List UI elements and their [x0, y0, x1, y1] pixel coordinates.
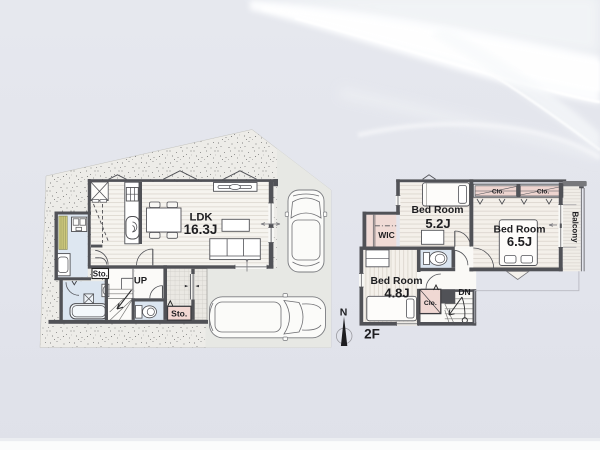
svg-text:4.8J: 4.8J — [384, 286, 409, 301]
svg-text:Clo.: Clo. — [424, 300, 437, 307]
svg-text:Clo.: Clo. — [492, 189, 504, 196]
svg-text:UP: UP — [134, 276, 148, 287]
svg-text:WIC: WIC — [378, 230, 395, 240]
svg-text:2F: 2F — [364, 327, 380, 342]
svg-text:DN: DN — [458, 287, 470, 297]
svg-text:Clo.: Clo. — [537, 189, 549, 196]
svg-text:6.5J: 6.5J — [507, 234, 532, 249]
svg-text:16.3J: 16.3J — [184, 222, 218, 237]
svg-text:Sto.: Sto. — [171, 309, 187, 319]
svg-text:Bed Room: Bed Room — [412, 205, 464, 216]
svg-text:N: N — [340, 307, 348, 319]
svg-text:Sto.: Sto. — [93, 269, 108, 278]
svg-text:5.2J: 5.2J — [425, 216, 450, 231]
svg-text:Balcony: Balcony — [571, 211, 580, 243]
